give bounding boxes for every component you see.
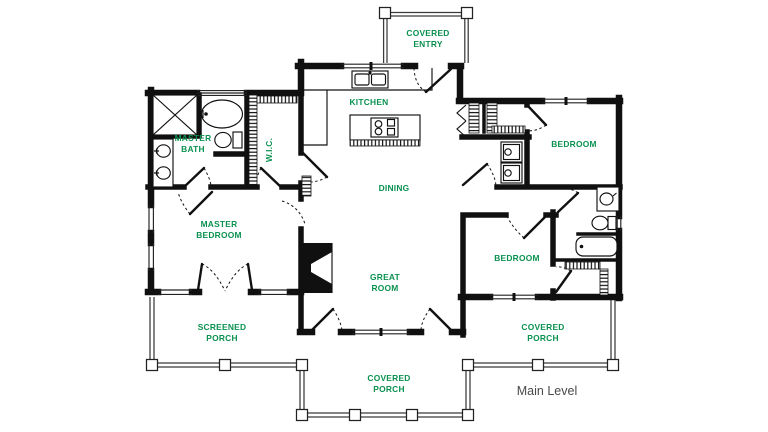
bathtub-hallbath — [576, 237, 617, 256]
floor-plan: COVERED ENTRY KITCHEN MASTER BATH W.I.C.… — [0, 0, 768, 432]
washer-dryer — [501, 142, 522, 183]
kitchen-island — [350, 115, 420, 146]
room-label-screened-porch-1: SCREENED — [198, 322, 247, 332]
room-label-covered-entry-2: ENTRY — [413, 39, 442, 49]
room-label-wic: W.I.C. — [264, 138, 274, 162]
vanity-double-sink — [153, 139, 173, 187]
toilet-hallbath — [592, 216, 616, 230]
room-label-covered-porch-bottom-1: COVERED — [367, 373, 410, 383]
room-label-great-room-2: ROOM — [371, 283, 398, 293]
room-label-master-bath-2: BATH — [181, 144, 205, 154]
room-label-master-bedroom-2: BEDROOM — [196, 230, 242, 240]
level-title: Main Level — [517, 384, 577, 398]
vanity-sink-hallbath — [597, 187, 619, 211]
room-label-great-room-1: GREAT — [370, 272, 401, 282]
floor-plan-canvas: COVERED ENTRY KITCHEN MASTER BATH W.I.C.… — [0, 0, 768, 432]
room-label-covered-porch-side-2: PORCH — [527, 333, 559, 343]
room-label-screened-porch-2: PORCH — [206, 333, 238, 343]
background — [0, 0, 768, 432]
room-label-master-bedroom-1: MASTER — [201, 219, 238, 229]
room-label-covered-porch-side-1: COVERED — [521, 322, 564, 332]
shower — [153, 95, 197, 135]
room-label-covered-entry-1: COVERED — [406, 28, 449, 38]
room-label-dining: DINING — [379, 183, 410, 193]
room-label-bedroom-lower: BEDROOM — [494, 253, 540, 263]
room-label-bedroom-upper: BEDROOM — [551, 139, 597, 149]
room-label-covered-porch-bottom-2: PORCH — [373, 384, 405, 394]
kitchen-sink — [352, 71, 388, 88]
toilet-master — [215, 132, 242, 148]
room-label-kitchen: KITCHEN — [350, 97, 389, 107]
room-label-master-bath-1: MASTER — [175, 133, 212, 143]
bathtub-master — [202, 100, 243, 128]
